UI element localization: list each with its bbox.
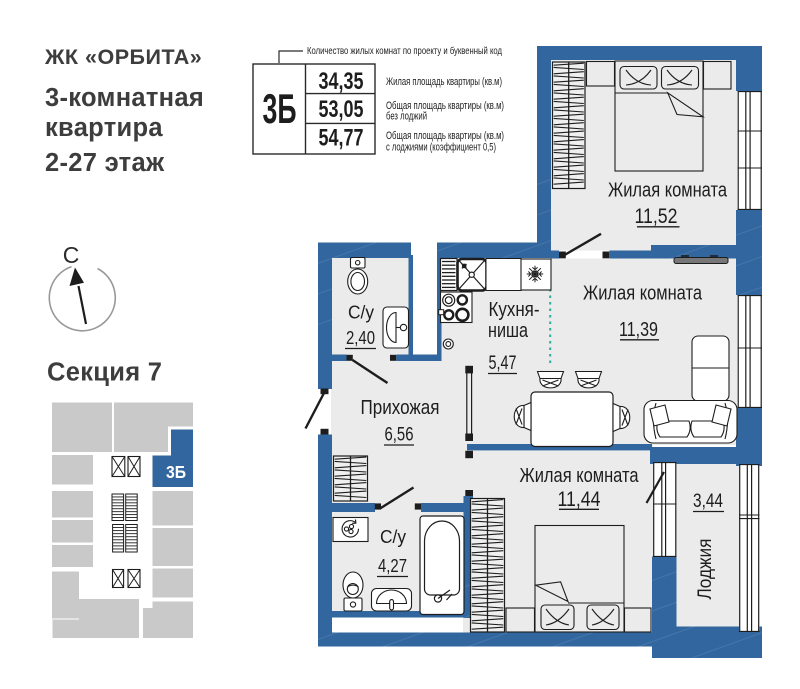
svg-text:3Б: 3Б bbox=[263, 85, 297, 132]
svg-text:2,40: 2,40 bbox=[346, 328, 375, 348]
svg-text:11,39: 11,39 bbox=[619, 319, 658, 341]
svg-text:Жилая комната: Жилая комната bbox=[608, 180, 728, 202]
svg-text:34,35: 34,35 bbox=[319, 68, 364, 95]
svg-text:2-27 этаж: 2-27 этаж bbox=[45, 149, 165, 177]
svg-text:Лоджия: Лоджия bbox=[694, 539, 716, 600]
svg-text:Секция 7: Секция 7 bbox=[47, 359, 162, 387]
svg-text:без лоджий: без лоджий bbox=[386, 111, 427, 123]
svg-text:ниша: ниша bbox=[488, 320, 529, 342]
svg-text:3Б: 3Б bbox=[166, 462, 186, 482]
svg-text:11,52: 11,52 bbox=[635, 205, 678, 228]
svg-text:Кухня-: Кухня- bbox=[489, 299, 540, 321]
svg-text:4,27: 4,27 bbox=[378, 556, 407, 576]
svg-text:3,44: 3,44 bbox=[693, 491, 723, 512]
svg-text:ЖК «ОРБИТА»: ЖК «ОРБИТА» bbox=[44, 45, 202, 69]
svg-text:С/у: С/у bbox=[348, 303, 374, 323]
svg-text:Прихожая: Прихожая bbox=[361, 397, 440, 419]
svg-text:с лоджиями (коэффициент 0,5): с лоджиями (коэффициент 0,5) bbox=[386, 142, 496, 154]
svg-text:Жилая комната: Жилая комната bbox=[583, 283, 703, 305]
svg-text:Количество жилых комнат по про: Количество жилых комнат по проекту и бук… bbox=[307, 45, 502, 57]
svg-text:С/у: С/у bbox=[380, 527, 406, 547]
svg-text:6,56: 6,56 bbox=[385, 425, 414, 446]
svg-text:11,44: 11,44 bbox=[558, 488, 601, 511]
svg-text:С: С bbox=[63, 242, 80, 268]
svg-text:Жилая площадь квартиры (кв.м): Жилая площадь квартиры (кв.м) bbox=[386, 76, 502, 88]
svg-text:квартира: квартира bbox=[45, 114, 163, 142]
svg-text:5,47: 5,47 bbox=[489, 353, 517, 374]
svg-text:54,77: 54,77 bbox=[319, 125, 364, 152]
svg-text:Жилая комната: Жилая комната bbox=[520, 465, 640, 487]
svg-text:53,05: 53,05 bbox=[319, 96, 364, 123]
svg-text:Общая площадь квартиры (кв.м): Общая площадь квартиры (кв.м) bbox=[386, 130, 504, 142]
svg-text:3-комнатная: 3-комнатная bbox=[45, 84, 204, 112]
